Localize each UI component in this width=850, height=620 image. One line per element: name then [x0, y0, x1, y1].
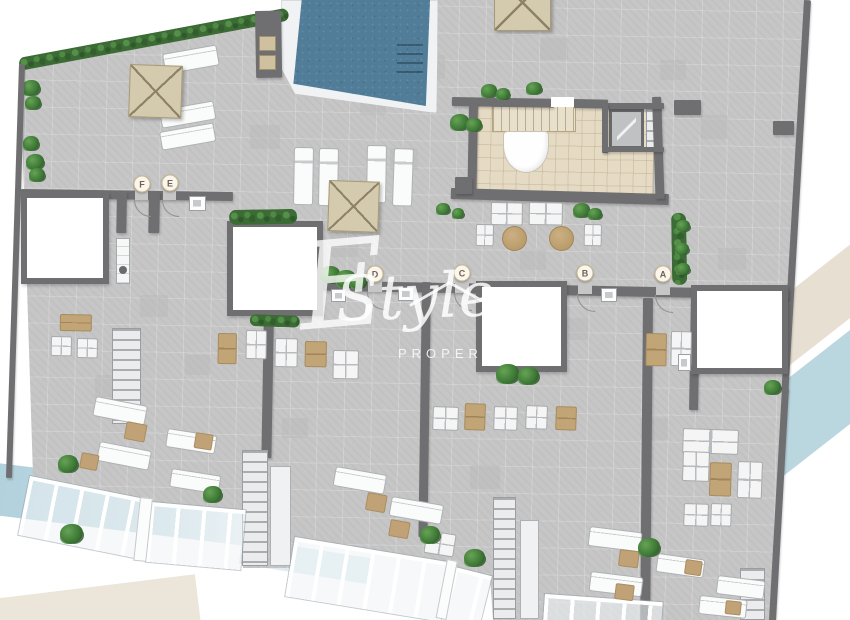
- unit-marker-d: D: [367, 266, 384, 283]
- unit-marker-e: E: [162, 175, 179, 192]
- unit-marker-a: A: [655, 266, 672, 283]
- unit-marker-c: C: [454, 265, 471, 282]
- unit-marker-f: F: [134, 176, 151, 193]
- unit-markers-layer: FEDCBA: [0, 0, 850, 620]
- unit-marker-b: B: [577, 265, 594, 282]
- floor-plan-image: FEDCBA E Style PROPERTIES: [0, 0, 850, 620]
